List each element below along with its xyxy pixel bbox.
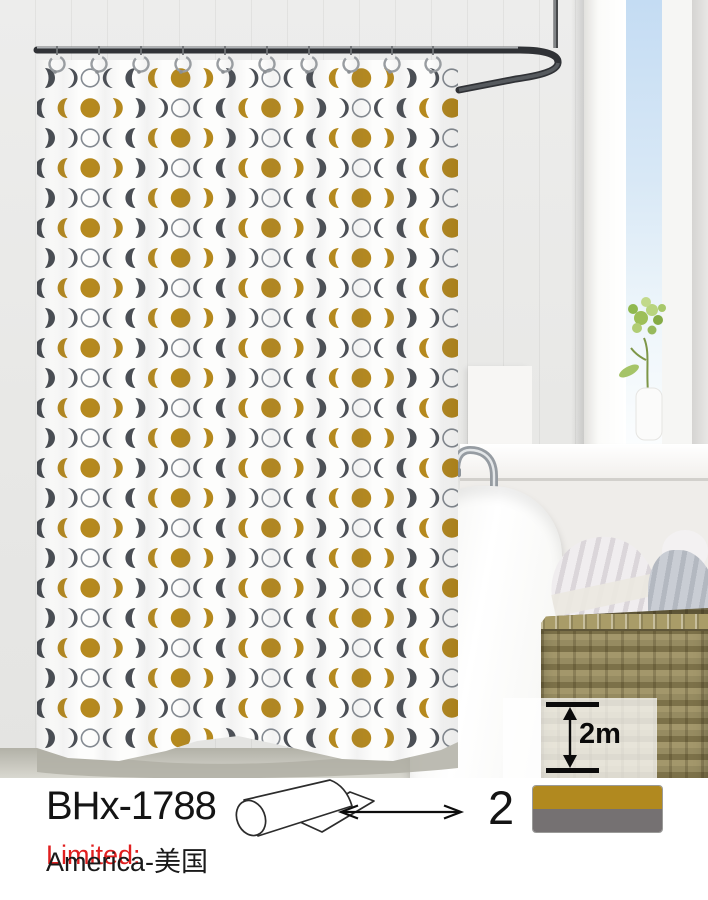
- height-value: 2m: [579, 718, 621, 751]
- moon-pattern: [37, 60, 458, 762]
- swatch-gold: [533, 786, 662, 809]
- height-dimension-annotation: 2m: [503, 698, 657, 778]
- shower-curtain: [37, 60, 458, 762]
- color-swatch: [532, 785, 663, 833]
- swatch-gray: [533, 809, 662, 832]
- model-number: BHx-1788: [46, 784, 216, 829]
- quantity-value: 2: [488, 780, 514, 835]
- product-listing-image: 2m BHx-1788 2 Limited: America-美国: [0, 0, 708, 900]
- width-arrow-icon: [334, 802, 468, 822]
- shower-rail: [0, 0, 708, 120]
- bathroom-photo: 2m: [0, 0, 708, 778]
- product-info: BHx-1788 2 Limited: America-美国: [0, 778, 708, 900]
- limited-region: America-美国: [46, 840, 208, 879]
